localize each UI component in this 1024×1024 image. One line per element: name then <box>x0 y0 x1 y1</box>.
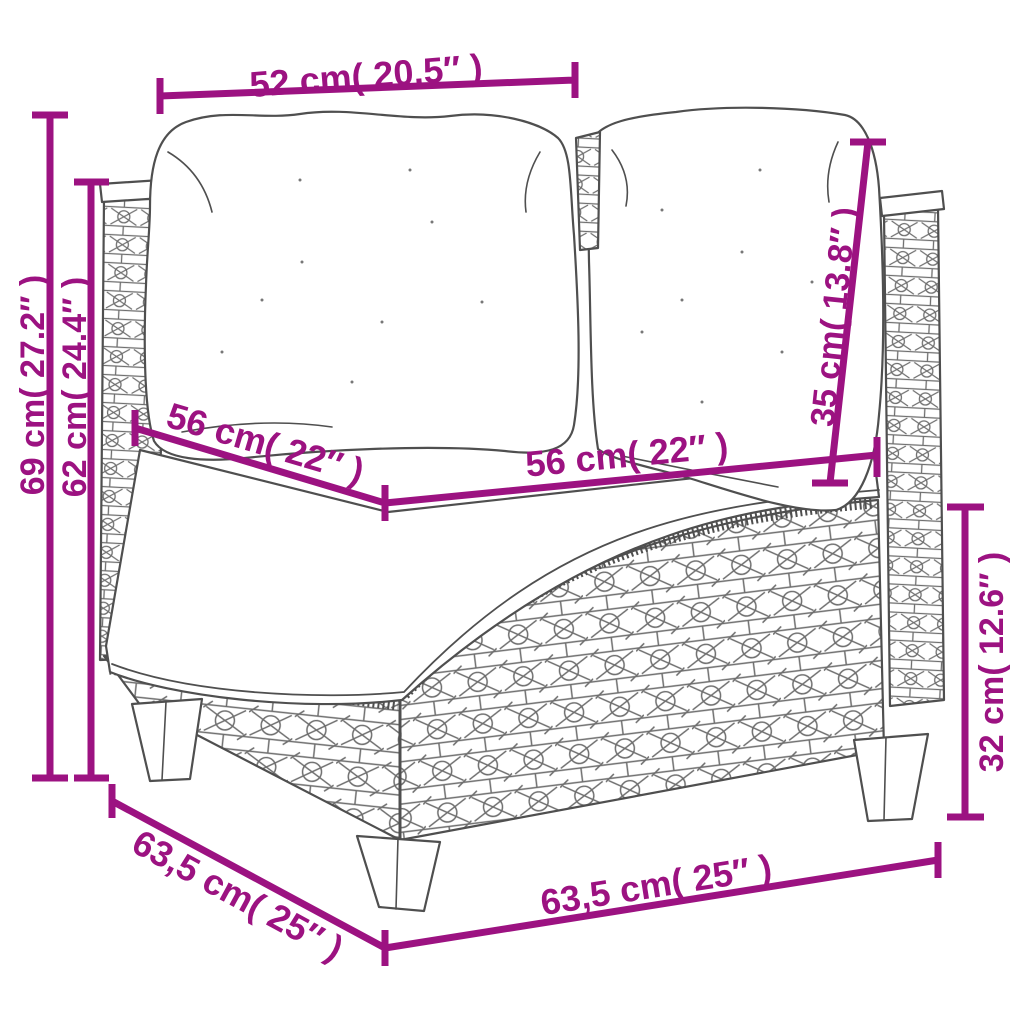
dim-frame-height-label: 62 cm( 24.4″ ) <box>56 277 94 497</box>
corner-wicker-sliver <box>576 132 600 250</box>
right-wicker-panel <box>880 191 944 706</box>
leg-right <box>854 734 928 821</box>
dim-total-height-label: 69 cm( 27.2″ ) <box>14 275 52 495</box>
dim-base-height-label: 32 cm( 12.6″ ) <box>973 552 1011 772</box>
dim-top-width-label: 52 cm( 20.5″ ) <box>248 46 484 105</box>
diagram-canvas: 52 cm( 20.5″ ) 69 cm( 27.2″ ) 62 cm( 24.… <box>0 0 1024 1024</box>
sofa-illustration <box>100 108 944 911</box>
leg-left <box>132 699 202 781</box>
dim-base-depth-label: 63,5 cm( 25″ ) <box>126 821 351 968</box>
dim-base-width-label: 63,5 cm( 25″ ) <box>538 846 775 923</box>
product-dimension-diagram: 52 cm( 20.5″ ) 69 cm( 27.2″ ) 62 cm( 24.… <box>0 0 1024 1024</box>
